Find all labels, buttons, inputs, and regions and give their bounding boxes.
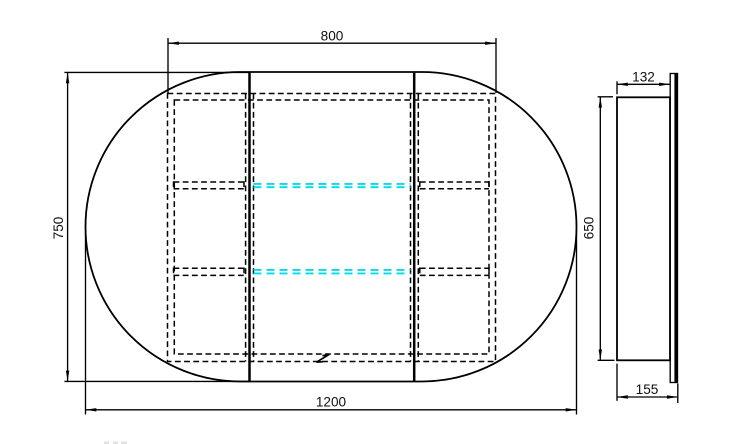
svg-text:800: 800	[321, 29, 344, 44]
svg-text:650: 650	[582, 216, 597, 239]
svg-text:132: 132	[632, 69, 655, 84]
svg-text:1200: 1200	[316, 394, 347, 409]
svg-text:155: 155	[636, 382, 659, 397]
svg-text:750: 750	[51, 216, 66, 239]
